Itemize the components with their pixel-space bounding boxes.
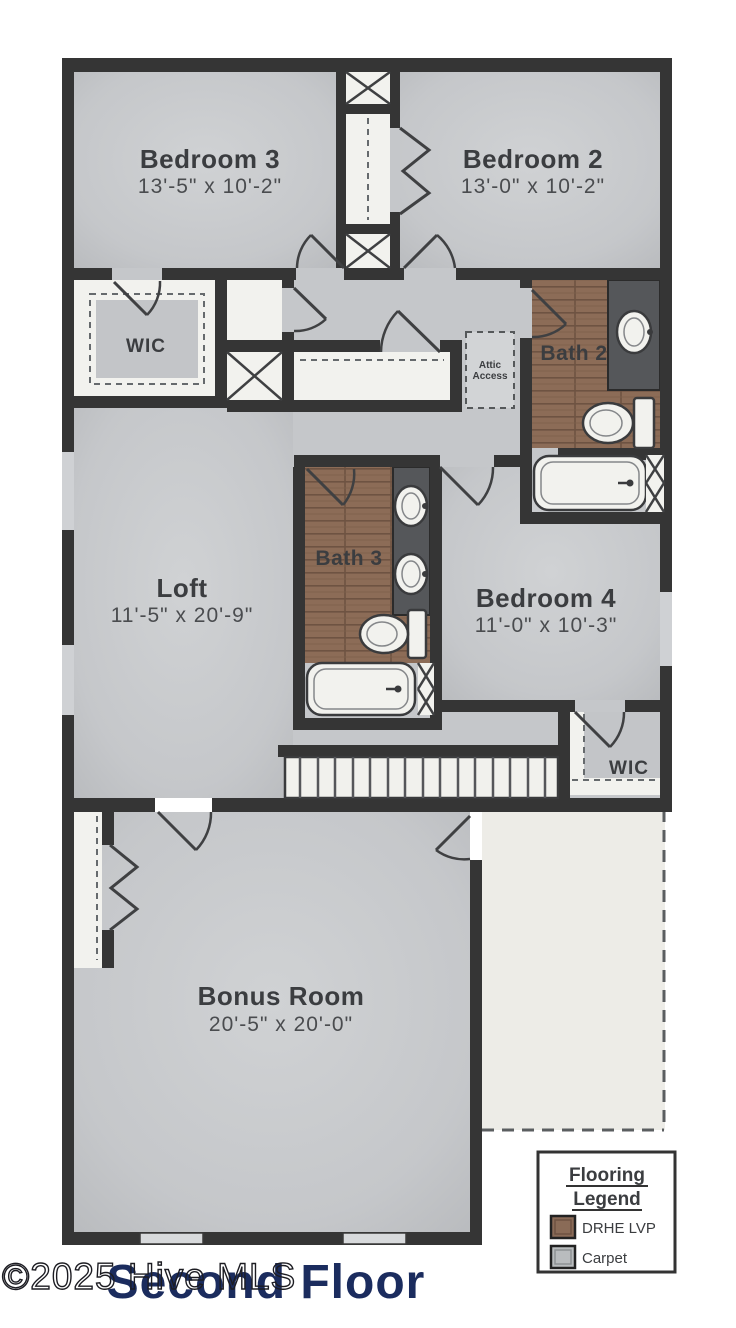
bedroom3-dims: 13'-5" x 10'-2" — [138, 175, 282, 198]
legend-title-1: Flooring — [569, 1165, 645, 1186]
loft-window-2 — [62, 645, 74, 715]
unfinished-storage-floor — [482, 812, 665, 1130]
loft-dims: 11'-5" x 20'-9" — [111, 604, 254, 627]
bath3-label: Bath 3 — [315, 547, 382, 570]
attic-access-label-2: Access — [472, 371, 507, 382]
legend-title-2: Legend — [573, 1189, 641, 1210]
bath2-chase — [646, 455, 664, 512]
bedroom4-dims: 11'-0" x 10'-3" — [475, 614, 618, 637]
bonus-window-1 — [140, 1233, 203, 1244]
bath2-toilet-tank — [634, 398, 654, 448]
bath3-chase — [418, 663, 434, 715]
bonus-room-label: Bonus Room — [198, 981, 365, 1011]
bath3-toilet-tank — [408, 610, 426, 658]
loft-label: Loft — [156, 573, 207, 603]
bonus-room-dims: 20'-5" x 20'-0" — [209, 1013, 353, 1036]
bonus-window-2 — [343, 1233, 406, 1244]
hall-linen-closet — [227, 280, 282, 340]
attic-access-label-1: Attic — [479, 360, 502, 371]
wic-lower-label: WIC — [609, 758, 649, 779]
bedroom4-label: Bedroom 4 — [476, 583, 616, 613]
loft-window — [62, 452, 74, 530]
wic-upper-label: WIC — [126, 336, 166, 357]
bedroom3-label: Bedroom 3 — [140, 144, 280, 174]
flooring-legend: Flooring Legend DRHE LVP Carpet — [538, 1152, 675, 1272]
watermark: ©2025 Hive MLS — [2, 1256, 296, 1297]
floor-plan-page: Bedroom 3 13'-5" x 10'-2" Bedroom 2 13'-… — [0, 0, 736, 1328]
bonus-closet-shelf — [74, 812, 102, 968]
bedroom2-dims: 13'-0" x 10'-2" — [461, 175, 605, 198]
legend-label-lvp: DRHE LVP — [582, 1220, 656, 1237]
stairs — [285, 757, 558, 798]
bath2-label: Bath 2 — [540, 342, 607, 365]
loft-floor — [74, 408, 293, 798]
floor-plan-drawing: Bedroom 3 13'-5" x 10'-2" Bedroom 2 13'-… — [0, 0, 736, 1328]
bedroom2-label: Bedroom 2 — [463, 144, 603, 174]
legend-label-carpet: Carpet — [582, 1250, 628, 1267]
wic-lower — [570, 712, 660, 795]
bedroom4-window — [660, 592, 672, 666]
